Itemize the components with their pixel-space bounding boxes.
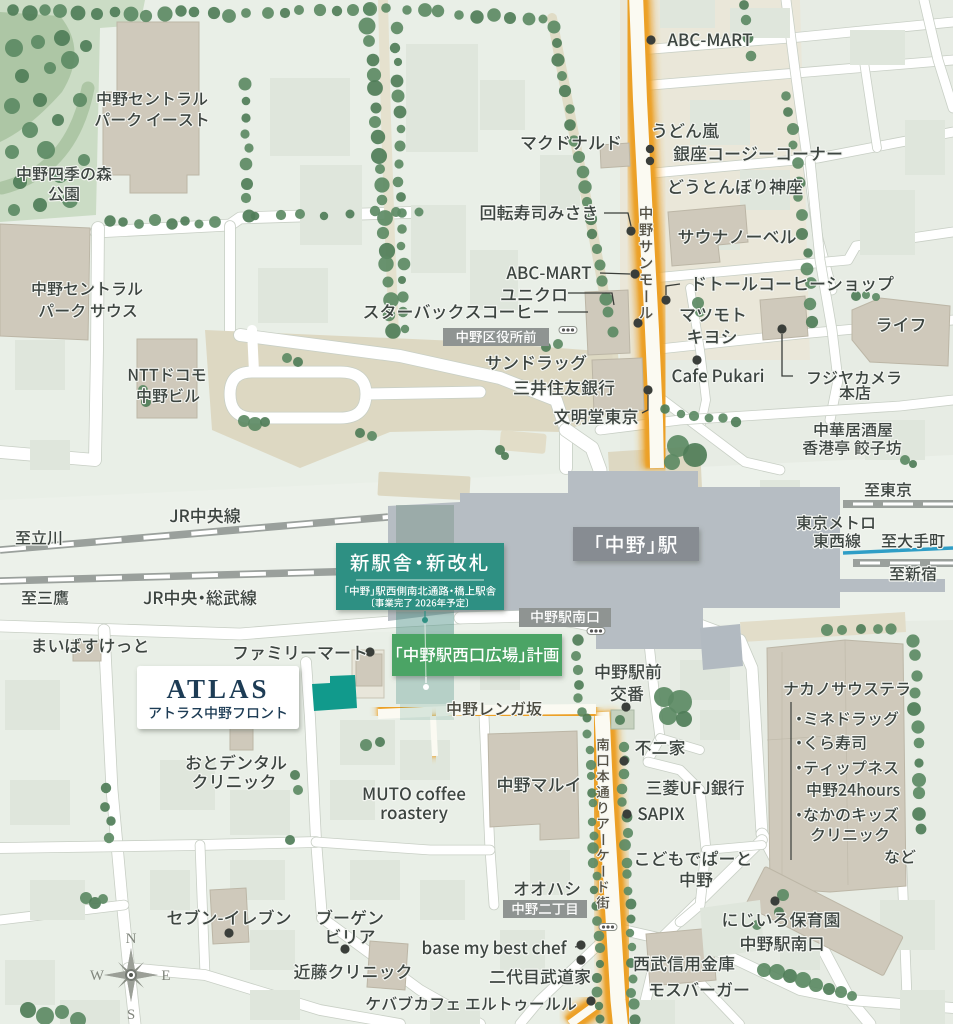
svg-text:S: S [127,1007,135,1023]
svg-text:ATLAS: ATLAS [166,674,269,704]
svg-text:N: N [126,931,137,947]
svg-text:W: W [90,968,105,984]
svg-text:E: E [161,968,170,984]
